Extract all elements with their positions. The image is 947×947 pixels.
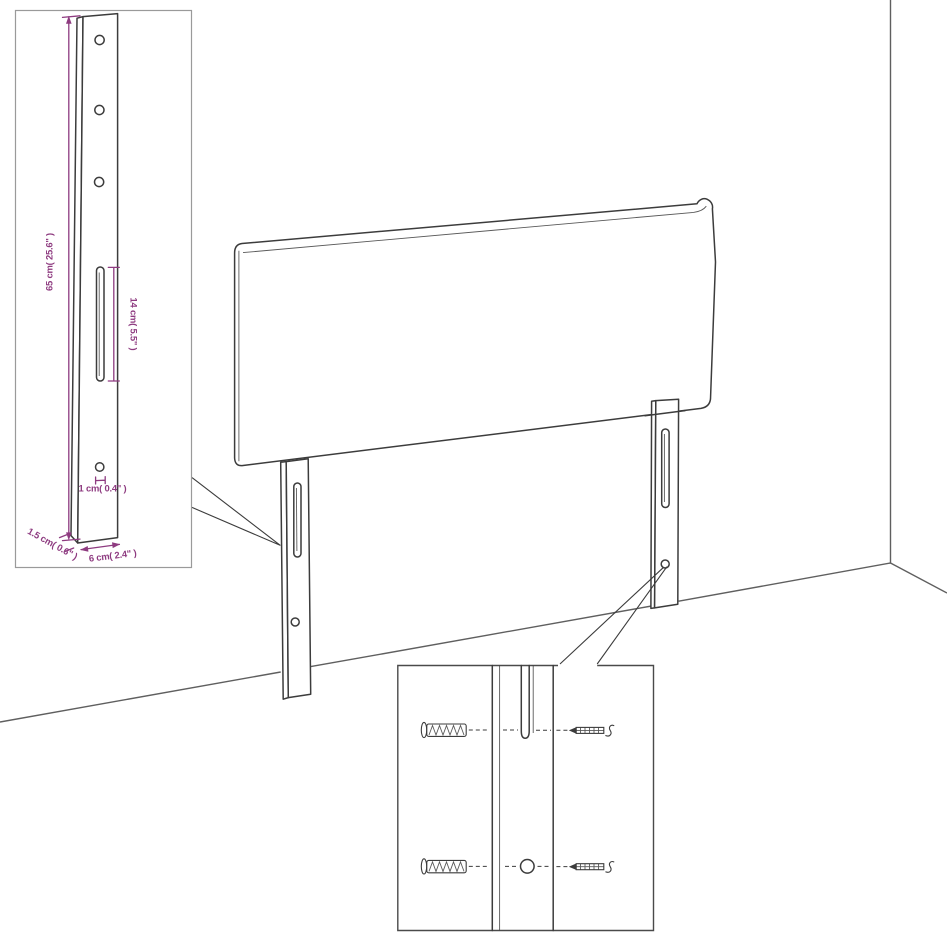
headboard-assembly-diagram: 65 cm( 25.6" ) 14 cm( 5.5" ) 1 cm( 0.4" …: [0, 0, 947, 947]
slot-length-label: 14 cm( 5.5" ): [129, 298, 140, 351]
floor-wall-right-line: [891, 563, 947, 593]
wall-plug-top: [421, 722, 466, 737]
inset1-leader-lines: [192, 478, 280, 546]
right-leg-screw-hole: [661, 560, 669, 568]
right-leg: [645, 399, 685, 608]
left-leg: [281, 459, 311, 699]
wall-plug-bottom: [421, 859, 466, 874]
inset1-top-hole-1: [95, 35, 104, 44]
headboard-panel: [235, 199, 716, 466]
diagram-canvas: 65 cm( 25.6" ) 14 cm( 5.5" ) 1 cm( 0.4" …: [0, 0, 947, 947]
leg-height-label: 65 cm( 25.6" ): [44, 233, 55, 291]
callout-leader-lines: [192, 478, 667, 664]
inset1-small-hole: [96, 463, 104, 471]
inset1-top-hole-3: [95, 177, 104, 186]
detail-inset-leg-dimensions: 65 cm( 25.6" ) 14 cm( 5.5" ) 1 cm( 0.4" …: [16, 11, 192, 568]
left-leg-slot: [294, 483, 301, 557]
headboard-outline: [235, 199, 716, 466]
inset2-round-hole: [521, 860, 535, 874]
hole-diameter-label: 1 cm( 0.4" ): [79, 483, 127, 494]
inset1-top-hole-2: [95, 105, 104, 114]
detail-inset-mounting-hardware: [398, 666, 654, 931]
left-leg-slot-inner-line: [296, 488, 297, 551]
left-leg-screw-hole: [291, 618, 299, 626]
right-leg-slot: [662, 429, 669, 508]
inset1-slot: [97, 267, 105, 381]
inset2-frame: [398, 666, 654, 931]
